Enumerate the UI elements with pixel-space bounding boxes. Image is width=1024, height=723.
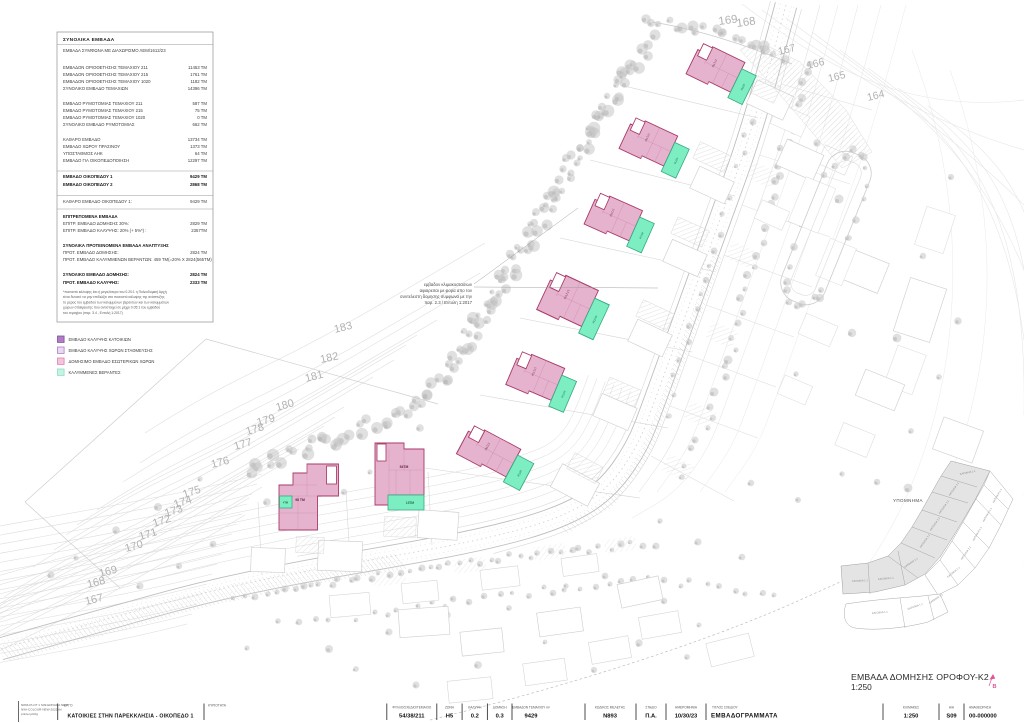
svg-text:0.3: 0.3 <box>496 714 505 720</box>
svg-text:11453 ΤΜ: 11453 ΤΜ <box>188 65 207 70</box>
svg-text:το μέρος του εμβαδού των καλ: το μέρος του εμβαδού των καλυμμένων βερα… <box>63 300 169 304</box>
svg-text:ΕΜΒΑΔΟ ΓΙΑ ΟΙΚΟΠΕΔΟΠΟΙΗΣΗ: ΕΜΒΑΔΟ ΓΙΑ ΟΙΚΟΠΕΔΟΠΟΙΗΣΗ <box>63 158 129 163</box>
svg-text:ΕΠΙΤΡ. ΕΜΒΑΔΟ ΔΟΜΗΣΗΣ 30%:: ΕΠΙΤΡ. ΕΜΒΑΔΟ ΔΟΜΗΣΗΣ 30%: <box>63 221 129 226</box>
svg-text:1:250: 1:250 <box>851 682 872 692</box>
svg-text:ΕΜΒΑΔΟΝ ΟΡΙΟΘΕΤΗΣΗΣ ΤΕΜΑΧΙΟΥ 2: ΕΜΒΑΔΟΝ ΟΡΙΟΘΕΤΗΣΗΣ ΤΕΜΑΧΙΟΥ 211 <box>63 65 148 70</box>
svg-text:*ποσοστό κάλυψης ίσο ή μεγαλύτ: *ποσοστό κάλυψης ίσο ή μεγαλύτερο του 0.… <box>63 290 167 294</box>
svg-text:75 ΤΜ: 75 ΤΜ <box>195 108 208 113</box>
svg-text:ΕΡΓΟ: ΕΡΓΟ <box>64 704 73 708</box>
svg-text:S09: S09 <box>946 714 957 720</box>
svg-text:ΚΑΘΑΡΟ ΕΜΒΑΔΟ ΟΙΚΟΠΕΔΟΥ 1:: ΚΑΘΑΡΟ ΕΜΒΑΔΟ ΟΙΚΟΠΕΔΟΥ 1: <box>63 199 132 204</box>
svg-text:ΕΜΒΑΔΟ ΡΥΜΟΤΟΜΙΑΣ ΤΕΜΑΧΙΟΥ 211: ΕΜΒΑΔΟ ΡΥΜΟΤΟΜΙΑΣ ΤΕΜΑΧΙΟΥ 211 <box>63 101 143 106</box>
svg-text:ΕΜΒΑΔΟΝ ΟΡΙΟΘΕΤΗΣΗΣ ΤΕΜΑΧΙΟΥ 1: ΕΜΒΑΔΟΝ ΟΡΙΟΘΕΤΗΣΗΣ ΤΕΜΑΧΙΟΥ 1020 <box>63 79 151 84</box>
svg-text:ΣΥΝΟΛΙΚΑ ΠΡΟΤΕΙΝΟΜΕΝΑ ΕΜΒΑΔΑ Α: ΣΥΝΟΛΙΚΑ ΠΡΟΤΕΙΝΟΜΕΝΑ ΕΜΒΑΔΑ ΑΝΑΠΤΥΞΗΣ <box>63 243 169 248</box>
svg-text:ΔΟΜΗΣΙΜΟ ΕΜΒΑΔΟ ΕΣΩΤΕΡΙΚΩΝ ΧΩΡ: ΔΟΜΗΣΙΜΟ ΕΜΒΑΔΟ ΕΣΩΤΕΡΙΚΩΝ ΧΩΡΩΝ <box>69 359 155 364</box>
svg-text:ΚΑΤΟΙΚΙΕΣ ΣΤΗΝ ΠΑΡΕΚΚΛΗΣΙΑ - Ο: ΚΑΤΟΙΚΙΕΣ ΣΤΗΝ ΠΑΡΕΚΚΛΗΣΙΑ - ΟΙΚΟΠΕΔΟ 1 <box>68 714 194 720</box>
svg-text:ΣΤΑΔΙΟ: ΣΤΑΔΙΟ <box>645 706 657 710</box>
svg-text:Π.Α.: Π.Α. <box>645 714 657 720</box>
svg-text:2829 ΤΜ: 2829 ΤΜ <box>190 221 207 226</box>
svg-text:ΚΑΘΑΡΟ ΕΜΒΑΔΟ: ΚΑΘΑΡΟ ΕΜΒΑΔΟ <box>63 137 101 142</box>
svg-text:1761 ΤΜ: 1761 ΤΜ <box>190 72 207 77</box>
svg-text:2824 ΤΜ: 2824 ΤΜ <box>190 250 207 255</box>
svg-text:1373 ΤΜ: 1373 ΤΜ <box>190 144 207 149</box>
svg-text:15ΤΜ: 15ΤΜ <box>406 501 414 505</box>
svg-text:ΦΥΛΛΟ/ΣΧΕΔΙΟ/ΤΕΜΑΧΙΟ: ΦΥΛΛΟ/ΣΧΕΔΙΟ/ΤΕΜΑΧΙΟ <box>392 706 431 710</box>
svg-text:ΑΝΑΘΕΩΡΗΣΗ: ΑΝΑΘΕΩΡΗΣΗ <box>969 706 992 710</box>
svg-text:0.2: 0.2 <box>471 714 479 720</box>
svg-text:13734 ΤΜ: 13734 ΤΜ <box>188 137 208 142</box>
svg-text:662 ΤΜ: 662 ΤΜ <box>193 122 208 127</box>
svg-text:ΕΜΒΑΔΟΓΡΑΜΜΑΤΑ: ΕΜΒΑΔΟΓΡΑΜΜΑΤΑ <box>711 713 778 720</box>
svg-text:ΖΩΝΗ: ΖΩΝΗ <box>445 706 455 710</box>
svg-text:ΕΠΙΤΡ. ΕΜΒΑΔΟ ΚΑΛΥΨΗΣ: 20% (+: ΕΠΙΤΡ. ΕΜΒΑΔΟ ΚΑΛΥΨΗΣ: 20% (+ 5%*) : <box>63 228 147 233</box>
svg-text:ΥΠΟΜΝΗΜΑ: ΥΠΟΜΝΗΜΑ <box>893 498 923 503</box>
svg-text:ΗΜΕΡΟΜΗΝΙΑ: ΗΜΕΡΟΜΗΝΙΑ <box>675 706 698 710</box>
svg-text:χώρων στάθμευσης που αντιστ: χώρων στάθμευσης που αντιστοιχεί σε μέχρ… <box>63 306 160 310</box>
svg-text:ΔΟΜΗΣΗ: ΔΟΜΗΣΗ <box>493 706 507 710</box>
svg-text:2333 ΤΜ: 2333 ΤΜ <box>190 280 207 285</box>
svg-text:ΕΜΒΑΔΟ ΚΑΛΥΨΗΣ ΚΑΤΟΙΚΙΩΝ: ΕΜΒΑΔΟ ΚΑΛΥΨΗΣ ΚΑΤΟΙΚΙΩΝ <box>69 337 131 342</box>
svg-text:παρ. 2.3 / Εντολη 1:2017: παρ. 2.3 / Εντολη 1:2017 <box>424 300 472 305</box>
svg-text:ΤΙΤΛΟΣ ΣΧΕΔΙΟΥ: ΤΙΤΛΟΣ ΣΧΕΔΙΟΥ <box>712 706 739 710</box>
svg-text:αφαιρειται με φορα απο τον: αφαιρειται με φορα απο τον <box>420 288 472 293</box>
svg-text:ΕΜΒΑΔΟΝ ΤΕΜΑΧΙΟΥ m²: ΕΜΒΑΔΟΝ ΤΕΜΑΧΙΟΥ m² <box>512 706 550 710</box>
svg-text:2824 ΤΜ: 2824 ΤΜ <box>190 272 207 277</box>
svg-text:ΕΜΒΑΔΟ ΧΩΡΟΥ ΠΡΑΣΙΝΟΥ: ΕΜΒΑΔΟ ΧΩΡΟΥ ΠΡΑΣΙΝΟΥ <box>63 144 120 149</box>
svg-text:14396 ΤΜ: 14396 ΤΜ <box>188 86 208 91</box>
svg-text:ΠΡΟΤ. ΕΜΒΑΔΟ ΚΑΛΥΜΜΕΝΩΝ ΒΕΡΑΝΤ: ΠΡΟΤ. ΕΜΒΑΔΟ ΚΑΛΥΜΜΕΝΩΝ ΒΕΡΑΝΤΩΝ: 459 ΤΜ… <box>63 257 212 262</box>
svg-text:του τεμαχίου (παρ. 3.4 , Εντολ: του τεμαχίου (παρ. 3.4 , Εντολή 1:2017) <box>63 311 123 315</box>
svg-text:ΕΜΒΑΔΟ ΟΙΚΟΠΕΔΟΥ 2: ΕΜΒΑΔΟ ΟΙΚΟΠΕΔΟΥ 2 <box>63 182 113 187</box>
svg-text:N9A-COLOUR-NEW-2023.tbl: N9A-COLOUR-NEW-2023.tbl <box>21 708 62 712</box>
svg-text:ΣΥΝΟΛΙΚΟ ΕΜΒΑΔΟ ΔΟΜΗΣΗΣ:: ΣΥΝΟΛΙΚΟ ΕΜΒΑΔΟ ΔΟΜΗΣΗΣ: <box>63 272 130 277</box>
svg-text:98 ΤΜ: 98 ΤΜ <box>295 498 305 502</box>
svg-text:00-000000: 00-000000 <box>969 714 997 720</box>
svg-text:ΕΜΒΑΔΑ ΔΟΜΗΣΗΣ ΟΡΟΦΟΥ-Κ2: ΕΜΒΑΔΑ ΔΟΜΗΣΗΣ ΟΡΟΦΟΥ-Κ2 <box>851 672 989 682</box>
svg-text:12297 ΤΜ: 12297 ΤΜ <box>188 158 208 163</box>
svg-text:1:250: 1:250 <box>904 714 919 720</box>
svg-text:ΣΥΝΟΛΙΚΟ ΕΜΒΑΔΟ ΤΕΜΑΧΙΩΝ: ΣΥΝΟΛΙΚΟ ΕΜΒΑΔΟ ΤΕΜΑΧΙΩΝ <box>63 86 128 91</box>
svg-text:ΕΜΒΑΔΟΝ ΟΡΙΟΘΕΤΗΣΗΣ ΤΕΜΑΧΙΟΥ: ΕΜΒΑΔΟΝ ΟΡΙΟΘΕΤΗΣΗΣ ΤΕΜΑΧΙΟΥ 215 <box>63 72 149 77</box>
svg-text:9429 ΤΜ: 9429 ΤΜ <box>190 199 207 204</box>
svg-text:ΚΩΔΙΚΟΣ ΜΕΛΕΤΗΣ: ΚΩΔΙΚΟΣ ΜΕΛΕΤΗΣ <box>595 706 625 710</box>
svg-text:ΚΑΛΥΜΜΕΝΕΣ ΒΕΡΑΝΤΕΣ: ΚΑΛΥΜΜΕΝΕΣ ΒΕΡΑΝΤΕΣ <box>69 370 121 375</box>
svg-text:B: B <box>993 684 997 690</box>
svg-text:ΕΜΒΑΔΟ ΡΥΜΟΤΟΜΙΑΣ ΤΕΜΑΧΙΟΥ 215: ΕΜΒΑΔΟ ΡΥΜΟΤΟΜΙΑΣ ΤΕΜΑΧΙΟΥ 215 <box>63 108 143 113</box>
svg-text:είναι δυνατό να μην επιδιώξει: είναι δυνατό να μην επιδιώξει στο ποσοστ… <box>63 295 165 299</box>
svg-text:64 ΤΜ: 64 ΤΜ <box>195 151 208 156</box>
svg-text:ΣΥΝΟΛΙΚΟ ΕΜΒΑΔΟ ΡΥΜΟΤΟΜΙΑΣ: ΣΥΝΟΛΙΚΟ ΕΜΒΑΔΟ ΡΥΜΟΤΟΜΙΑΣ <box>63 122 135 127</box>
svg-text:ΣΥΝΟΛΙΚΑ ΕΜΒΑΔΑ: ΣΥΝΟΛΙΚΑ ΕΜΒΑΔΑ <box>63 37 115 43</box>
svg-text:ΕΜΒΑΔΟ ΟΙΚΟΠΕΔΟΥ 1: ΕΜΒΑΔΟ ΟΙΚΟΠΕΔΟΥ 1 <box>63 174 113 179</box>
svg-text:ΕΜΒΑΔΟ ΚΑΛΥΨΗΣ ΧΩΡΩΝ ΣΤΑΘΜΕΥΣΗ: ΕΜΒΑΔΟ ΚΑΛΥΨΗΣ ΧΩΡΩΝ ΣΤΑΘΜΕΥΣΗΣ <box>69 348 154 353</box>
svg-text:συντελεστη δομησης συμφωνα με: συντελεστη δομησης συμφωνα με την <box>400 294 472 299</box>
svg-text:10/30/23: 10/30/23 <box>675 714 698 720</box>
svg-text:printer.pltcfg: printer.pltcfg <box>21 712 38 716</box>
svg-text:ΕΜΒΑΔΑ ΣΥΜΦΩΝΑ ΜΕ ΔΙΑΧΩΡΙΣΜΟ Λ: ΕΜΒΑΔΑ ΣΥΜΦΩΝΑ ΜΕ ΔΙΑΧΩΡΙΣΜΟ ΛΕΜ/1612/23 <box>63 48 166 53</box>
svg-text:Ν893: Ν893 <box>603 714 618 720</box>
svg-text:Α/Α: Α/Α <box>949 706 955 710</box>
svg-text:ΚΥΡΙΟΤΗΤΑ: ΚΥΡΙΟΤΗΤΑ <box>208 704 227 708</box>
svg-text:2868 ΤΜ: 2868 ΤΜ <box>190 182 207 187</box>
svg-text:ΠΡΟΤ. ΕΜΒΑΔΟ ΔΟΜΗΣΗΣ:: ΠΡΟΤ. ΕΜΒΑΔΟ ΔΟΜΗΣΗΣ: <box>63 250 119 255</box>
svg-text:0 ΤΜ: 0 ΤΜ <box>197 115 207 120</box>
svg-text:54ΤΜ: 54ΤΜ <box>400 465 409 469</box>
svg-text:9429 ΤΜ: 9429 ΤΜ <box>190 174 207 179</box>
svg-text:54/38/211: 54/38/211 <box>399 714 425 720</box>
svg-text:εμβαδον κλιμακοστασιων: εμβαδον κλιμακοστασιων <box>424 282 472 287</box>
svg-text:587 ΤΜ: 587 ΤΜ <box>193 101 208 106</box>
svg-text:4ΤΜ: 4ΤΜ <box>283 501 288 505</box>
svg-text:1182 ΤΜ: 1182 ΤΜ <box>190 79 207 84</box>
svg-text:2357ΤΜ: 2357ΤΜ <box>191 228 207 233</box>
svg-text:ΕΜΒΑΔΟ ΡΥΜΟΤΟΜΙΑΣ ΤΕΜΑΧΙΟΥ 102: ΕΜΒΑΔΟ ΡΥΜΟΤΟΜΙΑΣ ΤΕΜΑΧΙΟΥ 1020 <box>63 115 146 120</box>
svg-text:Η5: Η5 <box>446 714 454 720</box>
svg-text:ΥΠΟΣΤΑΘΜΟΣ ΑΗΚ: ΥΠΟΣΤΑΘΜΟΣ ΑΗΚ <box>63 151 103 156</box>
svg-text:N893-PLOT 1 S09-EMVADA NEO: N893-PLOT 1 S09-EMVADA NEO <box>21 703 68 707</box>
svg-text:ΠΡΟΤ. ΕΜΒΑΔΟ ΚΑΛΥΨΗΣ:: ΠΡΟΤ. ΕΜΒΑΔΟ ΚΑΛΥΨΗΣ: <box>63 280 120 285</box>
svg-text:ΕΠΙΤΡΕΠΟΜΕΝΑ ΕΜΒΑΔΑ: ΕΠΙΤΡΕΠΟΜΕΝΑ ΕΜΒΑΔΑ <box>63 214 118 219</box>
svg-text:ΚΑΛΥΨΗ: ΚΑΛΥΨΗ <box>468 706 482 710</box>
svg-text:ΚΛΙΜΑΚΕΣ: ΚΛΙΜΑΚΕΣ <box>903 706 919 710</box>
svg-text:9429: 9429 <box>525 714 539 720</box>
